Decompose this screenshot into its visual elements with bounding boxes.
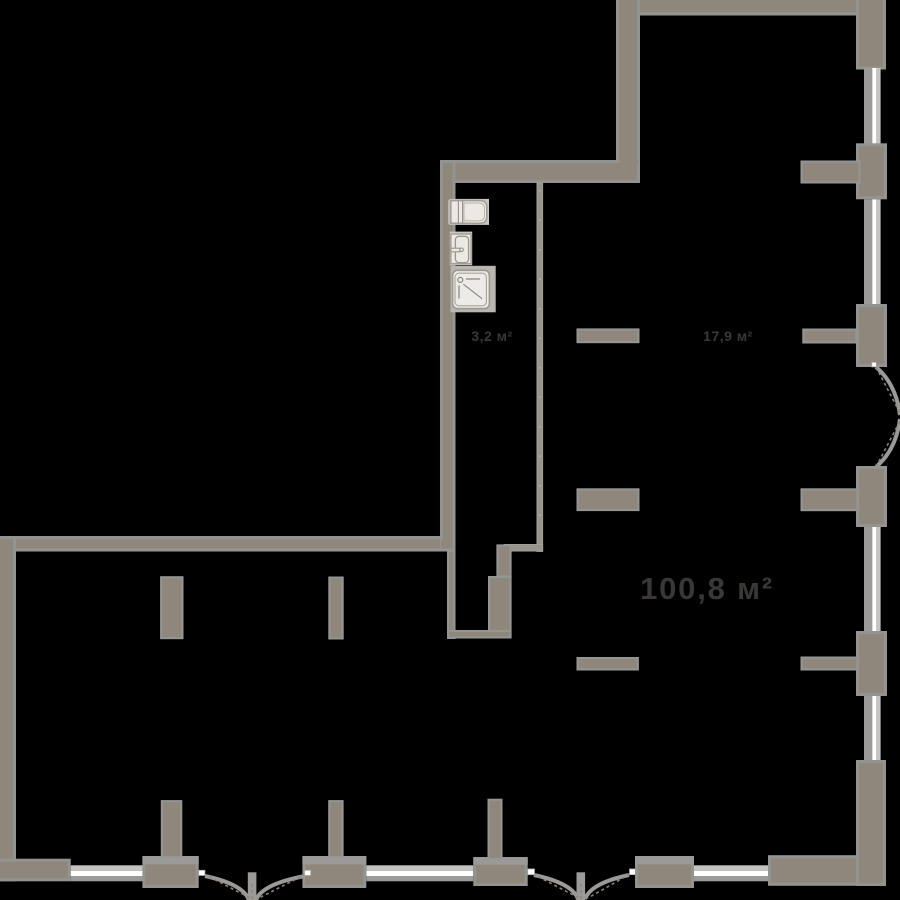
svg-text:3,2 м²: 3,2 м²: [471, 328, 512, 344]
svg-text:17,9 м²: 17,9 м²: [703, 328, 753, 344]
svg-text:100,8 м²: 100,8 м²: [640, 571, 774, 606]
